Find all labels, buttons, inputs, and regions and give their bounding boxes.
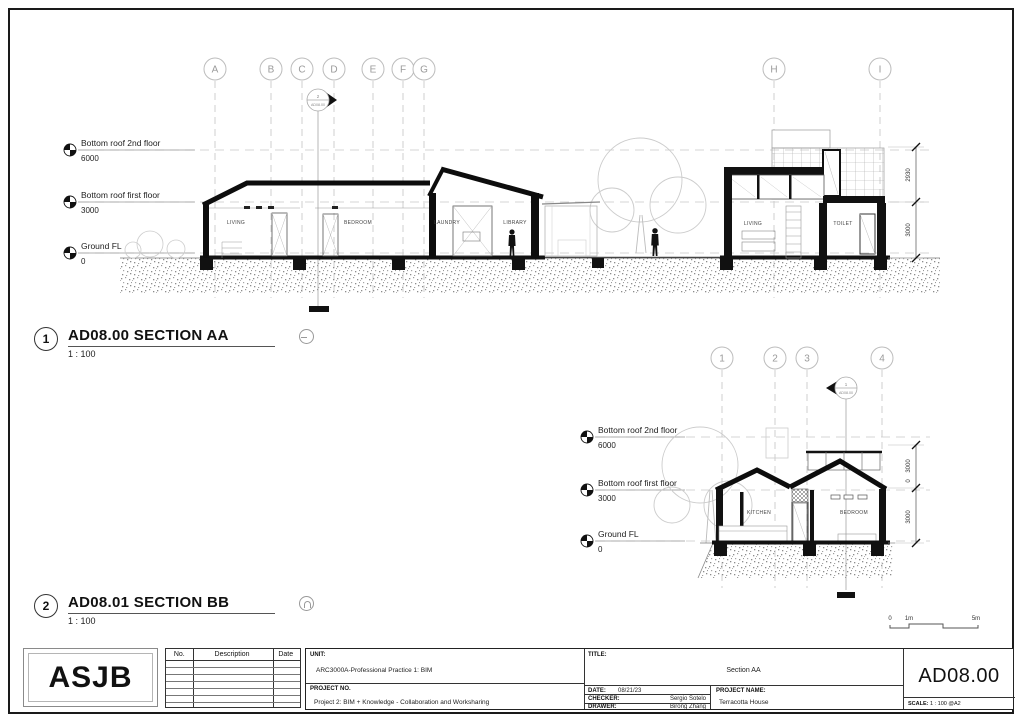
glazed-link-aa (542, 202, 600, 256)
svg-text:BEDROOM: BEDROOM (840, 510, 868, 516)
section-aa-title: 1 AD08.00 SECTION AA 1 : 100 (34, 327, 314, 359)
svg-text:LAUNDRY: LAUNDRY (434, 220, 460, 226)
title-block-divider (710, 685, 711, 709)
person-figure (508, 229, 515, 256)
revision-col-date: Date (271, 649, 300, 660)
scale-value: 1 : 100 @A2 (930, 701, 961, 707)
room-labels-bb: KITCHEN BEDROOM (747, 510, 868, 516)
section-cut-tail-aa (309, 306, 329, 312)
project-name-value: Terracotta House (719, 699, 769, 706)
level-underlines-bb (595, 437, 685, 541)
svg-text:1: 1 (719, 354, 725, 365)
section-bb-title: 2 AD08.01 SECTION BB 1 : 100 (34, 594, 314, 626)
svg-text:Bottom roof 2nd floor: Bottom roof 2nd floor (598, 425, 678, 435)
firm-logo-box: ASJB (23, 648, 158, 707)
bushes-aa (125, 231, 185, 258)
checker-value: Sergio Sotelo (634, 696, 706, 702)
level-underlines-aa (78, 150, 195, 253)
svg-text:LIVING: LIVING (744, 221, 762, 227)
tree-aa (590, 138, 706, 253)
revision-row (166, 688, 300, 689)
section-cut-tail-bb (837, 592, 855, 598)
date-value: 08/21/23 (618, 688, 641, 694)
svg-text:G: G (420, 65, 428, 76)
sheet-number: AD08.00 (903, 665, 1015, 688)
section-aa-title-text: AD08.00 SECTION AA (68, 327, 275, 347)
svg-text:AD08.00: AD08.00 (839, 391, 853, 395)
svg-text:B: B (268, 65, 275, 76)
svg-text:E: E (370, 65, 377, 76)
svg-text:Bottom roof 2nd floor: Bottom roof 2nd floor (81, 138, 161, 148)
svg-text:Bottom roof first floor: Bottom roof first floor (598, 478, 677, 488)
svg-text:F: F (400, 65, 406, 76)
title-label: TITLE: (588, 652, 607, 658)
svg-text:1m: 1m (905, 616, 913, 622)
svg-text:0: 0 (888, 616, 892, 622)
title-block: UNIT: ARC3000A-Professional Practice 1: … (305, 648, 1014, 710)
section-aa-callout-number: 1 (34, 327, 58, 351)
section-marker-bb: 1 AD08.00 (826, 377, 857, 399)
section-aa-scale: 1 : 100 (68, 349, 275, 359)
svg-text:0: 0 (598, 545, 603, 554)
sheet-scale: SCALE: 1 : 100 @A2 (908, 701, 961, 707)
svg-text:Ground FL: Ground FL (598, 529, 639, 539)
svg-text:3000: 3000 (906, 459, 912, 473)
svg-text:6000: 6000 (598, 441, 616, 450)
svg-text:AD08.00: AD08.00 (311, 103, 325, 107)
svg-text:I: I (879, 65, 882, 76)
svg-text:0: 0 (906, 479, 912, 483)
revision-table: No. Description Date (165, 648, 301, 708)
svg-text:H: H (770, 65, 777, 76)
svg-text:D: D (330, 65, 337, 76)
firm-logo-inner-frame: ASJB (28, 653, 153, 702)
title-block-divider (584, 649, 585, 709)
person-figure (651, 228, 659, 256)
revision-col-no: No. (166, 649, 193, 660)
revision-table-divider (193, 649, 194, 707)
svg-text:0: 0 (81, 257, 86, 266)
drawer-label: DRAWER: (588, 704, 617, 710)
room-labels-aa: LIVING BEDROOM LAUNDRY LIBRARY LIVING TO… (227, 220, 853, 227)
firm-logo: ASJB (48, 661, 132, 695)
section-bb-title-text: AD08.01 SECTION BB (68, 594, 275, 614)
unit-label: UNIT: (310, 652, 325, 658)
revision-row (166, 667, 300, 668)
dimension-string-aa: 2930 3000 (888, 143, 924, 262)
revision-col-description: Description (193, 649, 272, 660)
building-right-aa (720, 130, 890, 258)
revision-table-header: No. Description Date (166, 649, 300, 661)
scale-label: SCALE: (908, 701, 928, 707)
project-no-label: PROJECT NO. (310, 686, 351, 692)
ground-hatch-bb (698, 543, 895, 578)
svg-text:4: 4 (879, 354, 885, 365)
svg-text:BEDROOM: BEDROOM (344, 220, 372, 226)
view-orientation-icon (299, 329, 314, 344)
revision-row (166, 674, 300, 675)
grid-bubbles-bb: 1 2 3 4 (711, 347, 893, 369)
checker-label: CHECKER: (588, 696, 620, 702)
title-block-divider (584, 685, 903, 686)
svg-text:5m: 5m (972, 616, 980, 622)
svg-text:A: A (212, 65, 219, 76)
section-marker-aa: 2 AD08.00 (307, 89, 337, 111)
section-bb-callout-number: 2 (34, 594, 58, 618)
svg-text:LIBRARY: LIBRARY (503, 220, 527, 226)
svg-text:3000: 3000 (906, 223, 912, 237)
svg-text:TOILET: TOILET (833, 221, 852, 227)
revision-row (166, 702, 300, 703)
svg-text:3000: 3000 (906, 510, 912, 524)
revision-row (166, 695, 300, 696)
svg-text:6000: 6000 (81, 154, 99, 163)
section-bb-scale: 1 : 100 (68, 616, 275, 626)
title-block-divider (306, 683, 584, 684)
svg-text:3: 3 (804, 354, 810, 365)
svg-text:3000: 3000 (598, 494, 616, 503)
svg-text:Ground FL: Ground FL (81, 241, 122, 251)
svg-text:Bottom roof first floor: Bottom roof first floor (81, 190, 160, 200)
svg-text:2930: 2930 (906, 168, 912, 182)
svg-text:C: C (298, 65, 305, 76)
grid-bubbles-aa: A B C D E F G H I (204, 58, 891, 80)
title-value: Section AA (584, 667, 903, 674)
view-orientation-icon (299, 596, 314, 611)
graphic-scale-bar: 0 1m 5m (888, 616, 980, 628)
project-name-label: PROJECT NAME: (716, 688, 766, 694)
dimension-string-bb: 3000 0 3000 (888, 441, 924, 547)
building-bb (712, 428, 890, 543)
svg-text:LIVING: LIVING (227, 220, 245, 226)
title-block-divider (903, 697, 1015, 698)
building-left-aa (200, 169, 720, 258)
unit-value: ARC3000A-Professional Practice 1: BIM (316, 667, 432, 674)
drawer-value: Birong Zhang (634, 704, 706, 710)
svg-text:KITCHEN: KITCHEN (747, 510, 771, 516)
svg-text:3000: 3000 (81, 206, 99, 215)
date-label: DATE: (588, 688, 606, 694)
revision-table-divider (273, 649, 274, 707)
svg-text:2: 2 (772, 354, 778, 365)
project-no-value: Project 2: BIM + Knowledge - Collaborati… (314, 699, 489, 706)
revision-row (166, 681, 300, 682)
